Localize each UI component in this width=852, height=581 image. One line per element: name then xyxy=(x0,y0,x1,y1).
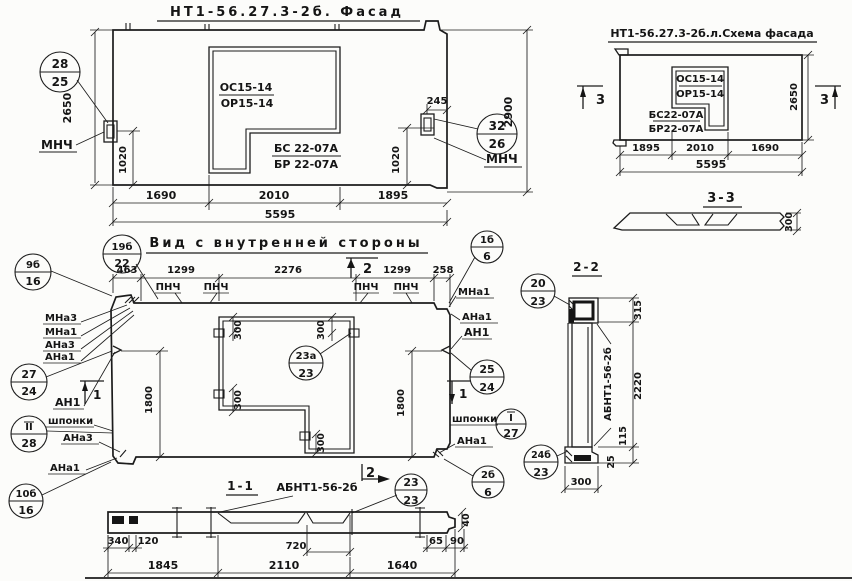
callout-bottom: 26 xyxy=(489,137,506,151)
callout-10b-16: 10б 16 xyxy=(9,484,43,518)
callout-bottom: 27 xyxy=(503,427,518,440)
callout-top: 23а xyxy=(296,351,317,362)
section-1-1-title: 1-1 xyxy=(227,479,255,493)
dim-5595: 5595 xyxy=(696,158,727,171)
dim-40: 40 xyxy=(461,513,472,527)
facade-anchor-left xyxy=(104,121,117,142)
callout-bottom: 6 xyxy=(484,486,492,499)
callout-top: I xyxy=(509,413,513,424)
dim-2010: 2010 xyxy=(686,143,714,154)
callout-bottom: 24 xyxy=(21,385,37,398)
blueprint-sheet: НТ1-56.27.3-2б. Фасад ОС15-14 ОР15-14 БС… xyxy=(0,0,852,581)
opening-mark-bottom: ОР15-14 xyxy=(676,89,724,100)
beam-mark-top: БС 22-07А xyxy=(274,142,338,155)
label-ana3-low: АНа3 xyxy=(63,433,93,444)
pnch-label-1: ПНЧ xyxy=(156,282,181,293)
callout-bottom: 23 xyxy=(298,367,313,380)
callout-top: II xyxy=(25,422,32,433)
marker-label: 2 xyxy=(366,466,375,481)
callout-bottom: 28 xyxy=(21,437,36,450)
leader-line xyxy=(554,296,570,305)
opening-mark-top: ОС15-14 xyxy=(676,74,724,85)
dim-1020-right: 1020 xyxy=(391,146,402,174)
dim-245: 245 xyxy=(427,96,448,107)
lifting-loop-marks xyxy=(126,23,339,30)
marker-label: 3 xyxy=(596,93,605,108)
leader-line xyxy=(451,353,471,370)
callout-23-23: 23 23 xyxy=(395,474,427,507)
schema-title: НТ1-56.27.3-2б.л.Схема фасада xyxy=(610,27,813,40)
dim-1299-b: 1299 xyxy=(383,265,411,276)
leader-lines xyxy=(76,80,108,145)
label-mna1-right: МНа1 xyxy=(458,287,490,298)
beam-mark-bottom: БР 22-07А xyxy=(274,158,338,171)
dim-300: 300 xyxy=(784,212,795,232)
dim-2276: 2276 xyxy=(274,265,302,276)
dim-2110: 2110 xyxy=(269,559,300,572)
inner-1800-dims: 1800 1800 xyxy=(121,347,442,461)
callout-top: 2б xyxy=(481,469,495,481)
inner-title: Вид с внутренней стороны xyxy=(149,236,422,251)
label-an1-right: АН1 xyxy=(464,326,489,339)
dim-315: 315 xyxy=(633,300,644,320)
callout-bottom: 23 xyxy=(530,295,545,308)
section-marker-2-bottom: 2 xyxy=(362,464,390,483)
facade-dimensions: 2650 1020 2900 245 1020 1690 2010 1895 5… xyxy=(61,26,533,226)
section-marker-3-left: 3 xyxy=(577,86,605,109)
dim-1800-left: 1800 xyxy=(144,386,155,414)
callout-27-24: 27 24 xyxy=(11,364,47,400)
inner-panel-outline xyxy=(111,295,450,464)
dim-25: 25 xyxy=(606,455,617,468)
section-3-3-title: 3-3 xyxy=(707,191,737,206)
callout-28-25: 28 25 xyxy=(40,52,80,92)
dim-1690: 1690 xyxy=(146,189,177,202)
marker-label: 1 xyxy=(459,387,467,401)
pnch-label-4: ПНЧ xyxy=(394,282,419,293)
pnch-label-2: ПНЧ xyxy=(204,282,229,293)
callout-20-23: 20 23 xyxy=(521,274,555,308)
schema-dimensions: 2650 1895 2010 1690 5595 xyxy=(616,51,814,176)
pnch-labels: ПНЧ ПНЧ ПНЧ ПНЧ xyxy=(155,282,419,303)
dim-300-c: 300 xyxy=(233,390,244,410)
leader-line xyxy=(444,459,473,476)
callout-top: 25 xyxy=(479,363,494,376)
dim-1800-right: 1800 xyxy=(396,389,407,417)
section-2-2: 2-2 20 23 АБНТ1-56-2б 315 2220 115 xyxy=(521,260,644,493)
dim-90: 90 xyxy=(450,536,464,547)
label-ana1-low: АНа1 xyxy=(50,463,80,474)
dim-300-b: 300 xyxy=(316,320,327,340)
facade-view: НТ1-56.27.3-2б. Фасад ОС15-14 ОР15-14 БС… xyxy=(39,5,533,226)
callout-25-24: 25 24 xyxy=(470,360,504,394)
pnch-label-3: ПНЧ xyxy=(354,282,379,293)
callout-top: 10б xyxy=(16,488,37,500)
callout-bottom: 23 xyxy=(403,494,418,507)
section-3-3: 3-3 300 xyxy=(614,191,801,235)
callout-1b-6: 1б 6 xyxy=(471,231,503,263)
marker-label: 1 xyxy=(93,388,101,402)
callout-top: 27 xyxy=(21,368,36,381)
callout-1-27: I 27 xyxy=(496,409,526,440)
opening-300-dims: 300 300 300 300 xyxy=(229,313,336,457)
anchor-label-mnch-left: МНЧ xyxy=(41,138,73,152)
leader-line xyxy=(51,271,112,296)
dim-1299-a: 1299 xyxy=(167,265,195,276)
section-1-1: 1-1 АБНТ1-56-2б 23 23 340 120 720 65 90 xyxy=(103,474,472,577)
section-2-2-title: 2-2 xyxy=(573,260,601,274)
facade-title: НТ1-56.27.3-2б. Фасад xyxy=(170,5,404,20)
inner-view: Вид с внутренней стороны 19б 22 9б 16 46… xyxy=(9,231,526,518)
callout-9b-16: 9б 16 xyxy=(15,254,51,290)
callout-23a-23: 23а 23 xyxy=(289,346,323,380)
beam-mark-bottom: БР22-07А xyxy=(649,124,704,135)
callout-bottom: 16 xyxy=(25,275,41,288)
callout-top: 9б xyxy=(26,259,40,271)
marker-label: 3 xyxy=(820,93,829,108)
label-ana1-right: АНа1 xyxy=(462,312,492,323)
dim-2650: 2650 xyxy=(61,92,74,123)
section-1-1-dimensions: 340 120 720 65 90 40 1845 2110 1640 xyxy=(103,508,472,577)
dim-2220: 2220 xyxy=(633,372,644,400)
opening-mark-bottom: ОР15-14 xyxy=(221,97,274,110)
label-mna3: МНа3 xyxy=(45,313,77,324)
section-marker-2-top: 2 xyxy=(346,258,378,278)
anchor-label-mnch-right: МНЧ xyxy=(486,152,518,166)
callout-top: 23 xyxy=(403,476,418,489)
opening-mark-top: ОС15-14 xyxy=(220,81,273,94)
leader-lines xyxy=(220,495,397,513)
dim-1020-left: 1020 xyxy=(118,146,129,174)
dim-258: 258 xyxy=(433,265,454,276)
callout-top: 19б xyxy=(112,241,133,253)
inner-left-labels: МНа3 МНа1 АНа3 АНа1 АН1 шпонки АНа3 АНа1 xyxy=(43,305,134,474)
callout-top: 20 xyxy=(530,277,546,290)
section-2-2-profile xyxy=(565,298,598,463)
callout-top: 24б xyxy=(531,450,551,461)
callout-top: 28 xyxy=(52,57,69,71)
dim-340: 340 xyxy=(108,536,129,547)
dim-1690: 1690 xyxy=(751,143,779,154)
section-2-2-panel-mark: АБНТ1-56-2б xyxy=(602,347,614,421)
facade-anchor-right xyxy=(421,114,434,135)
label-mna1: МНа1 xyxy=(45,327,77,338)
label-an1-left: АН1 xyxy=(55,396,80,409)
dim-300: 300 xyxy=(571,477,592,488)
dim-2010: 2010 xyxy=(259,189,290,202)
label-shponki-left: шпонки xyxy=(48,416,93,427)
callout-bottom: 16 xyxy=(18,504,34,517)
dim-5595: 5595 xyxy=(265,208,296,221)
label-shponki-right: шпонки xyxy=(452,414,497,425)
label-ana3: АНа3 xyxy=(45,340,75,351)
callout-bottom: 24 xyxy=(479,381,495,394)
callout-11-28: II 28 xyxy=(11,416,47,452)
dim-2900: 2900 xyxy=(502,96,515,127)
callout-24b-23: 24б 23 xyxy=(524,445,558,479)
callout-bottom: 23 xyxy=(533,466,548,479)
label-ana1: АНа1 xyxy=(45,352,75,363)
dim-300-d: 300 xyxy=(316,433,327,453)
dim-1845: 1845 xyxy=(148,559,179,572)
dim-463: 463 xyxy=(117,265,138,276)
section-marker-3-right: 3 xyxy=(815,86,841,109)
marker-label: 2 xyxy=(363,262,372,277)
callout-bottom: 25 xyxy=(52,75,69,89)
dim-300-a: 300 xyxy=(233,320,244,340)
beam-mark-top: БС22-07А xyxy=(649,110,704,121)
dim-2650: 2650 xyxy=(789,83,800,111)
dim-720: 720 xyxy=(286,541,307,552)
callout-bottom: 6 xyxy=(483,250,491,263)
leader-line xyxy=(557,451,568,456)
callout-2b-6: 2б 6 xyxy=(472,466,504,499)
label-ana1-right-low: АНа1 xyxy=(457,436,487,447)
dim-65: 65 xyxy=(429,536,443,547)
schema-view: НТ1-56.27.3-2б.л.Схема фасада ОС15-14 ОР… xyxy=(577,27,841,235)
section-1-1-profile xyxy=(108,507,455,538)
callout-top: 1б xyxy=(480,234,494,246)
dim-1895: 1895 xyxy=(378,189,409,202)
dim-1640: 1640 xyxy=(387,559,418,572)
dim-115: 115 xyxy=(618,426,629,446)
dim-120: 120 xyxy=(138,536,159,547)
dim-1895: 1895 xyxy=(632,143,660,154)
section-1-1-subtitle: АБНТ1-56-2б xyxy=(276,481,357,494)
